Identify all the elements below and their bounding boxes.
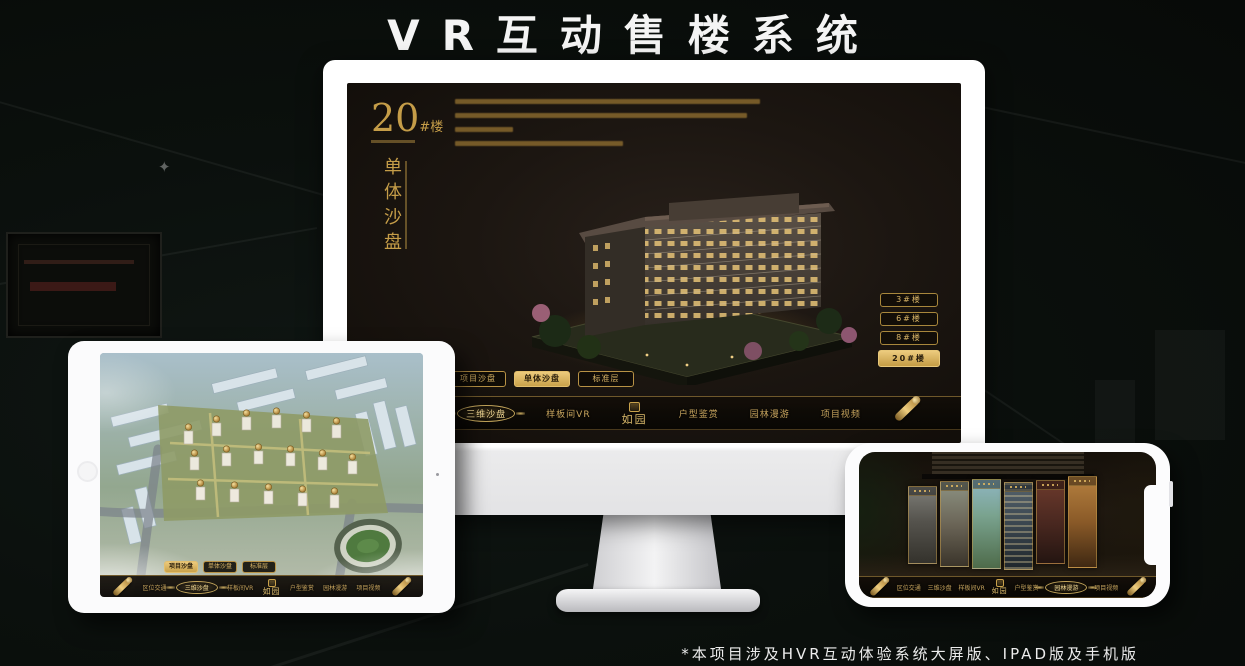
tab-single-sandtable[interactable]: 单体沙盘: [203, 561, 237, 573]
scroll-icon[interactable]: [892, 395, 922, 423]
tablet-nav-bar: 区位交通 三维沙盘 样板间VR 如园 户型鉴赏 园林漫游 项目视频: [100, 575, 423, 597]
building-render: [497, 155, 877, 385]
footnote: *本项目涉及HVR互动体验系统大屏版、IPAD版及手机版: [681, 643, 1139, 664]
tab-project-sandtable[interactable]: 项目沙盘: [450, 371, 506, 387]
nav-item-garden-roam[interactable]: 园林漫游: [1045, 581, 1087, 594]
floor-button-6[interactable]: 6#楼: [880, 312, 938, 326]
promo-canvas: ✦ VR互动售楼系统 *本项目涉及HVR互动体验系统大屏版、IPAD版及手机版 …: [0, 0, 1245, 666]
nav-item-project-video[interactable]: 项目视频: [821, 407, 861, 420]
scene-strip-interior-warm[interactable]: [940, 481, 969, 567]
phone-nav-bar: 区位交通 三维沙盘 样板间VR 如园 户型鉴赏 园林漫游 项目视频: [859, 576, 1156, 598]
nav-item-showroom-vr[interactable]: 样板间VR: [958, 583, 984, 592]
subtitle-caption-bar: [405, 161, 407, 249]
nav-item-3d-sandtable[interactable]: 三维沙盘: [928, 583, 952, 592]
phone-screen: 区位交通 三维沙盘 样板间VR 如园 户型鉴赏 园林漫游 项目视频: [859, 452, 1156, 598]
nav-item-3d-sandtable[interactable]: 三维沙盘: [176, 581, 218, 594]
bg-road-line: [0, 92, 372, 210]
notch: [1144, 485, 1156, 565]
home-button[interactable]: [77, 461, 98, 482]
nav-item-garden-roam[interactable]: 园林漫游: [323, 583, 347, 592]
camera-icon: [436, 473, 439, 476]
phone-device: 区位交通 三维沙盘 样板间VR 如园 户型鉴赏 园林漫游 项目视频: [845, 443, 1170, 607]
nav-item-floorplans[interactable]: 户型鉴赏: [290, 583, 314, 592]
scene-strip-garden-sky[interactable]: [972, 479, 1001, 569]
block-number: 20: [371, 96, 419, 140]
scroll-icon[interactable]: [868, 577, 890, 597]
floor-button-group: 3#楼 6#楼 8#楼 20#楼: [877, 293, 941, 367]
bg-city-block: [1095, 380, 1135, 450]
scene-strip-bar-shelf[interactable]: [1068, 476, 1097, 568]
nav-item-showroom-vr[interactable]: 样板间VR: [227, 583, 253, 592]
headline-underline: [371, 140, 415, 143]
scene-strip-interior-gray[interactable]: [908, 486, 937, 564]
tab-standard-floor[interactable]: 标准层: [578, 371, 634, 387]
scene-gallery: [908, 476, 1097, 570]
block-headline: 20#楼: [371, 99, 443, 143]
page-title: VR互动售楼系统: [0, 2, 1245, 63]
tablet-device: 项目沙盘 单体沙盘 标准层 区位交通 三维沙盘 样板间VR 如园 户型鉴赏 园林…: [68, 341, 455, 613]
scroll-icon[interactable]: [390, 577, 412, 597]
nav-item-garden-roam[interactable]: 园林漫游: [750, 407, 790, 420]
tab-project-sandtable[interactable]: 项目沙盘: [164, 561, 198, 573]
seal-icon: [996, 579, 1004, 587]
monitor-stand-base: [556, 589, 760, 612]
logo-text: 如园: [263, 588, 281, 596]
bg-plaque: [6, 232, 162, 338]
ruyuan-logo[interactable]: 如园: [992, 579, 1008, 595]
block-subtitle-vertical: 单体沙盘: [378, 157, 404, 257]
bg-city-block: [1155, 330, 1225, 440]
side-button[interactable]: [1169, 481, 1173, 507]
floor-button-8[interactable]: 8#楼: [880, 331, 938, 345]
nav-item-location[interactable]: 区位交通: [143, 583, 167, 592]
ruyuan-logo[interactable]: 如园: [263, 579, 281, 596]
logo-text: 如园: [992, 588, 1008, 595]
nav-item-project-video[interactable]: 项目视频: [356, 583, 380, 592]
floor-button-3[interactable]: 3#楼: [880, 293, 938, 307]
logo-text: 如园: [622, 414, 648, 425]
tablet-screen: 项目沙盘 单体沙盘 标准层 区位交通 三维沙盘 样板间VR 如园 户型鉴赏 园林…: [100, 353, 423, 597]
nav-item-project-video[interactable]: 项目视频: [1094, 583, 1118, 592]
monitor-stand-neck: [592, 512, 722, 596]
tab-standard-floor[interactable]: 标准层: [242, 561, 276, 573]
entrance-canopy: [932, 452, 1084, 476]
scene-strip-building[interactable]: [1004, 482, 1033, 570]
scroll-icon[interactable]: [1125, 577, 1147, 597]
sandtable-subtabs: 项目沙盘 单体沙盘 标准层: [450, 371, 634, 387]
floor-button-20[interactable]: 20#楼: [878, 350, 940, 367]
scene-strip-night[interactable]: [1036, 480, 1065, 564]
nav-item-location[interactable]: 区位交通: [897, 583, 921, 592]
nav-item-showroom-vr[interactable]: 样板间VR: [546, 407, 590, 420]
tab-single-sandtable[interactable]: 单体沙盘: [514, 371, 570, 387]
tablet-subtabs: 项目沙盘 单体沙盘 标准层: [164, 561, 276, 573]
description-text-blur: [455, 99, 760, 155]
ruyuan-logo[interactable]: 如园: [622, 402, 648, 425]
seal-icon: [268, 579, 276, 587]
scroll-icon[interactable]: [111, 577, 133, 597]
nav-item-3d-sandtable[interactable]: 三维沙盘: [457, 405, 515, 422]
block-number-suffix: #楼: [419, 120, 443, 135]
nav-item-floorplans[interactable]: 户型鉴赏: [679, 407, 719, 420]
seal-icon: [629, 402, 640, 412]
sparkle-icon: ✦: [158, 158, 171, 176]
